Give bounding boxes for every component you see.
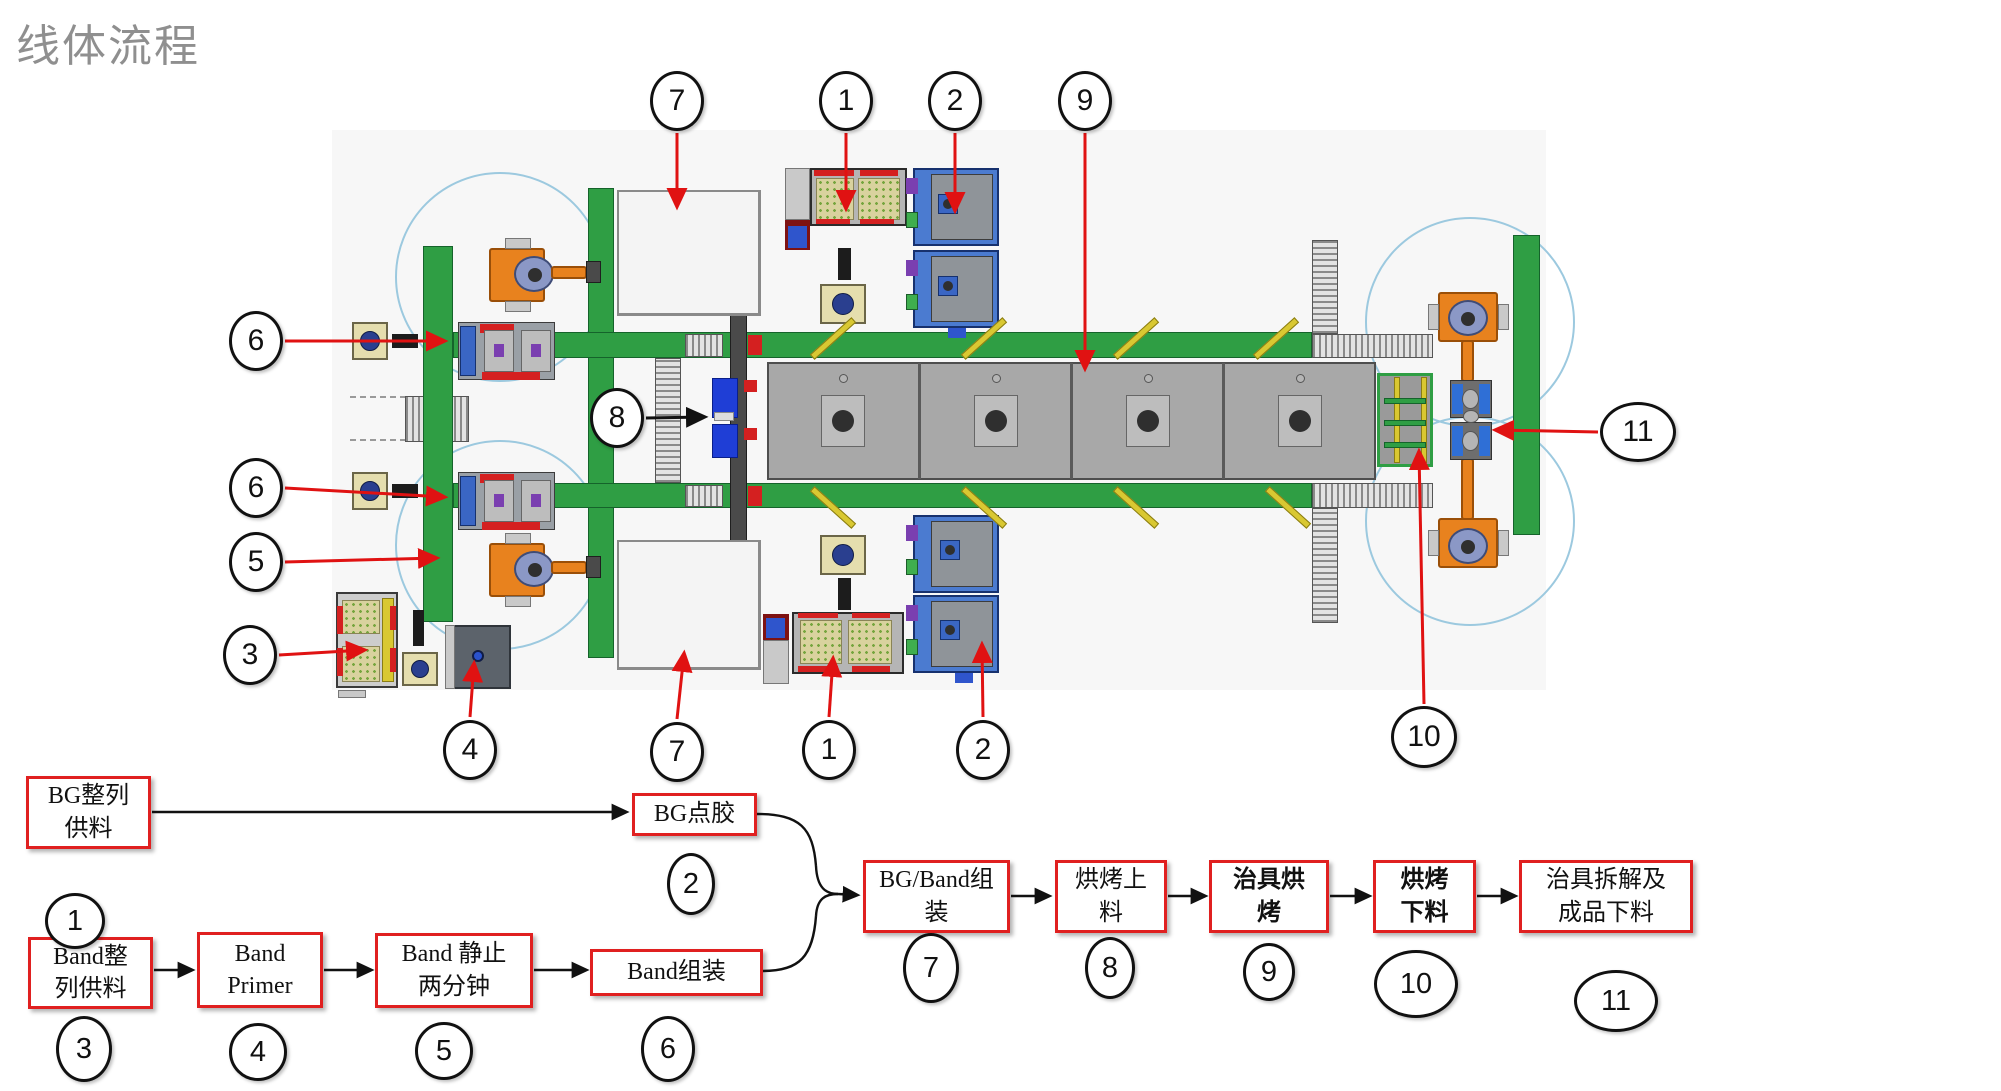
flow-step-number-2: 2 [667,853,715,915]
flow-step-number-10: 10 [1374,950,1458,1018]
callout-number: 2 [947,84,964,118]
callout-number: 6 [248,324,265,358]
callout-number: 3 [242,638,259,672]
slide-line-flow: 线体流程 71296865347121011 BG整列供料1BG点胶2Band整… [0,0,2001,1091]
flow-step-number-label: 3 [76,1033,92,1066]
flow-step-number-label: 7 [923,952,939,985]
flow-step-number-label: 11 [1601,985,1631,1018]
arrow-layer [0,0,2001,1091]
flow-step-number-label: 10 [1400,968,1432,1001]
flow-merge-connector [763,916,816,971]
callout-number: 9 [1077,84,1094,118]
machine-callout-1: 1 [802,720,856,780]
machine-callout-5: 5 [229,532,283,592]
callout-arrow [470,664,474,717]
flow-step-number-7: 7 [903,933,959,1003]
callout-number: 5 [248,545,265,579]
flow-merge-connector [757,814,816,866]
callout-number: 11 [1622,415,1653,449]
flow-step-number-label: 5 [436,1035,452,1068]
callout-number: 8 [609,401,626,435]
callout-arrow [829,659,833,717]
callout-arrow [677,654,684,719]
callout-arrow [1496,430,1598,432]
callout-arrow [982,645,983,717]
machine-callout-8: 8 [590,388,644,448]
machine-callout-4: 4 [443,720,497,780]
machine-callout-6: 6 [229,311,283,371]
flow-step-number-label: 1 [67,905,83,938]
callout-number: 2 [975,733,992,767]
callout-arrow [279,650,364,655]
machine-callout-3: 3 [223,625,277,685]
flow-step-number-6: 6 [641,1016,695,1082]
flow-merge-connector [816,894,838,916]
flow-step-number-8: 8 [1085,937,1135,999]
callout-arrow [285,558,436,562]
flow-merge-connector [816,866,838,894]
machine-callout-9: 9 [1058,71,1112,131]
callout-number: 7 [669,84,686,118]
machine-callout-6: 6 [229,458,283,518]
callout-arrow [646,417,704,418]
machine-callout-10: 10 [1391,706,1457,768]
flow-step-number-label: 4 [250,1036,266,1069]
flow-step-number-label: 2 [683,868,699,901]
callout-arrow [285,488,444,497]
machine-callout-2: 2 [928,71,982,131]
callout-number: 7 [669,735,686,769]
flow-step-number-5: 5 [415,1022,473,1080]
flow-step-number-1: 1 [45,893,105,949]
machine-callout-7: 7 [650,71,704,131]
callout-number: 10 [1407,720,1440,754]
machine-callout-1: 1 [819,71,873,131]
flow-step-number-9: 9 [1243,943,1295,1001]
callout-number: 4 [462,733,479,767]
machine-callout-7: 7 [650,722,704,782]
flow-merge-arrow [838,894,857,895]
callout-arrow [1419,452,1424,704]
flow-step-number-4: 4 [229,1023,287,1081]
flow-step-number-label: 6 [660,1033,676,1066]
callout-number: 1 [838,84,855,118]
flow-step-number-11: 11 [1574,970,1658,1032]
flow-step-number-3: 3 [56,1016,112,1082]
machine-callout-11: 11 [1600,402,1676,462]
callout-number: 1 [821,733,838,767]
callout-number: 6 [248,471,265,505]
machine-callout-2: 2 [956,720,1010,780]
flow-step-number-label: 8 [1102,952,1118,985]
flow-step-number-label: 9 [1261,956,1277,989]
